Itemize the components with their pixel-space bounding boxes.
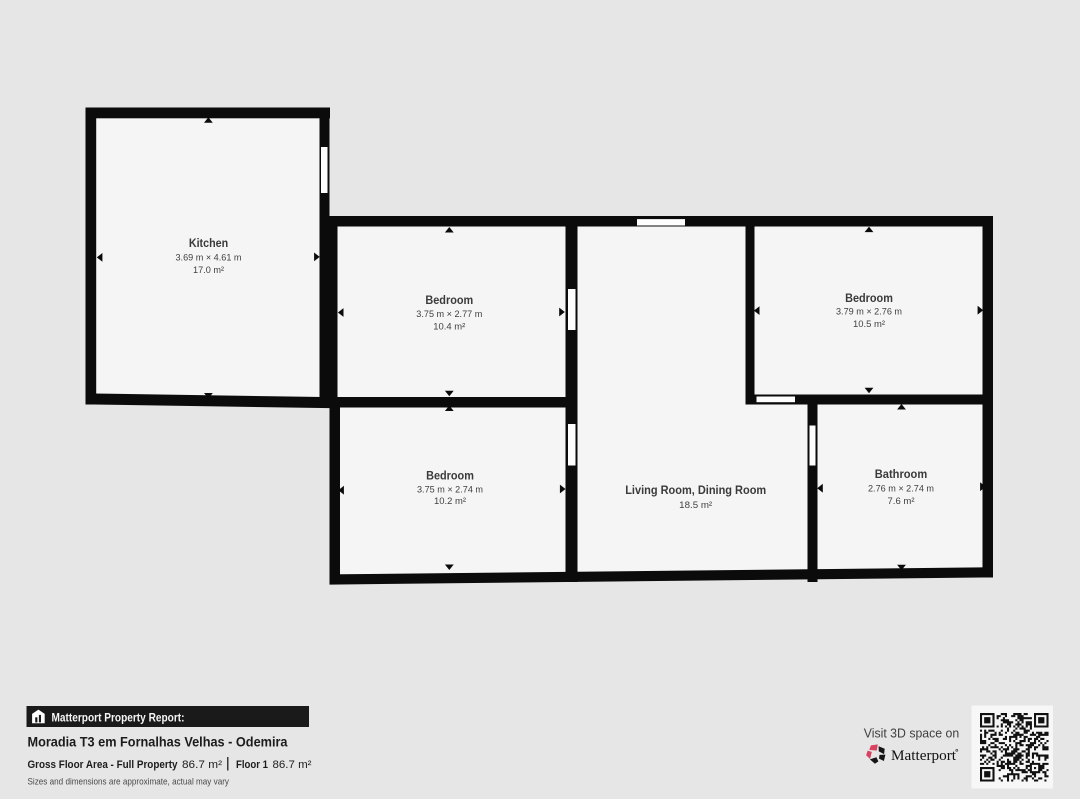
svg-text:Sizes and dimensions are appro: Sizes and dimensions are approximate, ac… bbox=[28, 777, 230, 788]
svg-text:3.69 m × 4.61 m: 3.69 m × 4.61 m bbox=[176, 252, 242, 263]
svg-text:Matterport: Matterport bbox=[891, 748, 957, 764]
svg-text:3.75 m × 2.77 m: 3.75 m × 2.77 m bbox=[416, 309, 482, 320]
svg-text:Moradia T3 em Fornalhas Velhas: Moradia T3 em Fornalhas Velhas - Odemira bbox=[28, 734, 288, 750]
svg-text:10.5 m²: 10.5 m² bbox=[853, 319, 885, 330]
svg-text:17.0 m²: 17.0 m² bbox=[193, 265, 224, 276]
svg-text:18.5 m²: 18.5 m² bbox=[679, 500, 712, 511]
svg-text:Bedroom: Bedroom bbox=[425, 293, 473, 307]
svg-text:Visit 3D space on: Visit 3D space on bbox=[864, 726, 960, 741]
svg-text:Bedroom: Bedroom bbox=[426, 469, 474, 483]
svg-text:Matterport Property Report:: Matterport Property Report: bbox=[52, 713, 185, 725]
svg-text:86.7 m²: 86.7 m² bbox=[273, 759, 312, 771]
svg-text:86.7 m²: 86.7 m² bbox=[182, 759, 222, 771]
svg-text:Bedroom: Bedroom bbox=[845, 291, 893, 305]
svg-text:Floor 1: Floor 1 bbox=[236, 759, 268, 771]
svg-text:Living Room, Dining Room: Living Room, Dining Room bbox=[625, 483, 766, 497]
svg-text:7.6 m²: 7.6 m² bbox=[888, 496, 915, 507]
svg-text:3.75 m × 2.74 m: 3.75 m × 2.74 m bbox=[417, 485, 483, 496]
svg-text:3.79 m × 2.76 m: 3.79 m × 2.76 m bbox=[836, 306, 902, 317]
svg-text:10.4 m²: 10.4 m² bbox=[433, 322, 465, 333]
svg-text:Bathroom: Bathroom bbox=[875, 467, 927, 481]
svg-text:Kitchen: Kitchen bbox=[189, 236, 228, 250]
svg-text:10.2 m²: 10.2 m² bbox=[434, 496, 466, 507]
svg-text:2.76 m × 2.74 m: 2.76 m × 2.74 m bbox=[868, 484, 934, 495]
svg-text:Gross Floor Area - Full Proper: Gross Floor Area - Full Property bbox=[28, 759, 179, 771]
